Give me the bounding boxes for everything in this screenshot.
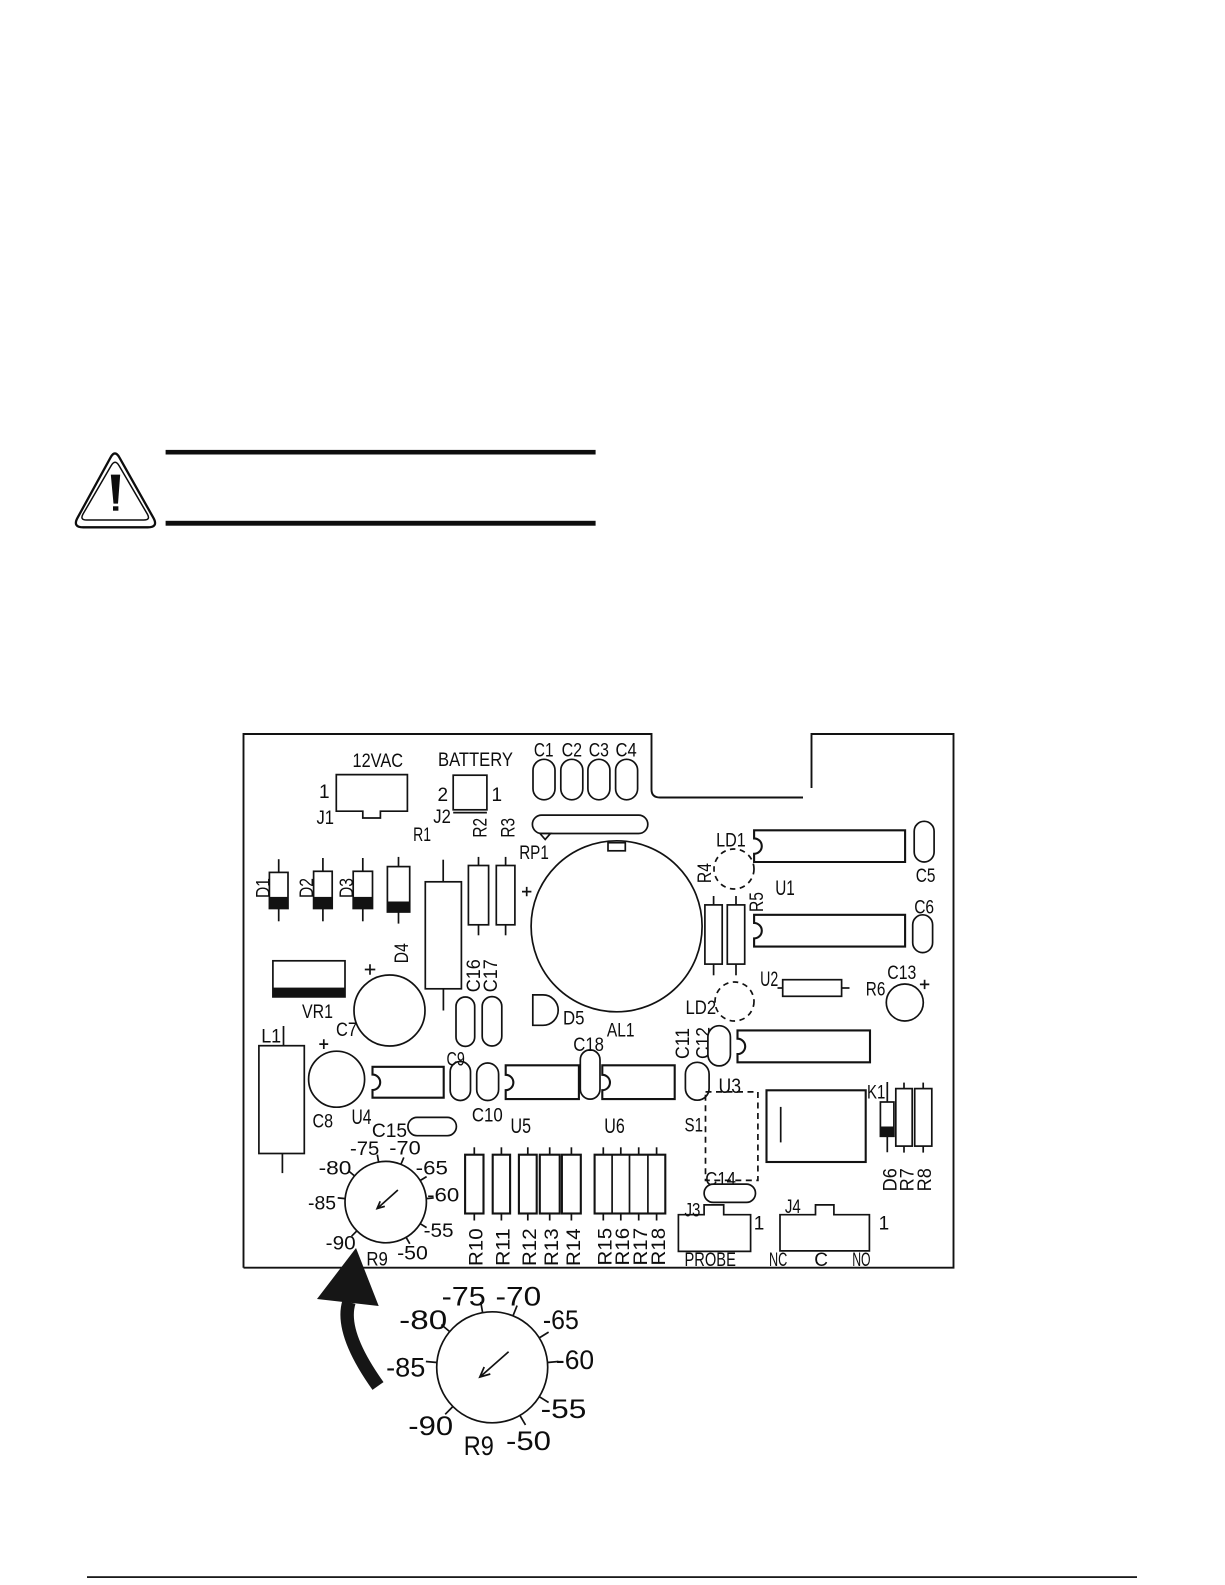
svg-text:RP1: RP1 [519,843,549,864]
svg-text:-50: -50 [397,1243,428,1264]
svg-text:-60: -60 [427,1185,459,1206]
svg-text:-80: -80 [319,1158,352,1179]
svg-text:K1: K1 [867,1082,885,1103]
svg-text:NO: NO [852,1250,870,1271]
svg-text:J4: J4 [785,1197,801,1218]
svg-text:-80: -80 [399,1305,447,1335]
svg-text:R13: R13 [542,1228,563,1266]
svg-text:C10: C10 [472,1106,503,1127]
svg-text:2: 2 [438,785,449,806]
svg-text:R11: R11 [494,1228,515,1266]
svg-text:D3: D3 [337,878,358,898]
svg-text:R9: R9 [464,1431,494,1461]
svg-text:-55: -55 [424,1221,454,1242]
svg-text:R1: R1 [413,825,431,846]
svg-text:BATTERY: BATTERY [438,750,513,771]
svg-text:J3: J3 [685,1201,701,1222]
svg-text:NC: NC [769,1250,787,1271]
svg-text:C7: C7 [336,1020,357,1041]
svg-text:-70: -70 [389,1138,420,1159]
svg-text:R5: R5 [747,892,768,912]
svg-text:1: 1 [492,785,503,806]
svg-text:-85: -85 [386,1353,425,1383]
svg-text:C4: C4 [616,740,638,761]
svg-text:-65: -65 [416,1158,448,1179]
svg-text:S1: S1 [685,1115,704,1136]
svg-text:-75: -75 [442,1281,486,1311]
svg-text:R9: R9 [366,1250,388,1271]
svg-text:J1: J1 [317,808,335,829]
svg-text:-55: -55 [541,1394,587,1424]
svg-text:R8: R8 [915,1168,936,1191]
svg-text:C5: C5 [916,866,936,887]
svg-text:U3: U3 [719,1075,742,1098]
svg-text:1: 1 [319,782,330,803]
svg-text:U1: U1 [775,877,795,900]
svg-text:-90: -90 [408,1411,453,1441]
svg-text:-65: -65 [543,1305,579,1335]
svg-text:R12: R12 [520,1228,541,1266]
svg-text:C1: C1 [534,740,554,761]
svg-text:C13: C13 [887,963,916,984]
svg-text:R2: R2 [471,818,492,838]
svg-text:1: 1 [879,1213,890,1234]
svg-text:U5: U5 [511,1115,532,1138]
svg-text:VR1: VR1 [302,1002,333,1023]
svg-text:U6: U6 [604,1115,625,1138]
svg-text:R14: R14 [564,1228,585,1266]
svg-text:J2: J2 [433,807,451,828]
svg-text:R10: R10 [467,1228,488,1266]
svg-text:C11: C11 [673,1028,694,1059]
svg-text:R18: R18 [649,1228,670,1266]
svg-text:R3: R3 [498,818,519,838]
svg-text:C9: C9 [447,1050,465,1071]
svg-text:12VAC: 12VAC [353,751,404,772]
svg-text:LD1: LD1 [716,831,746,852]
svg-text:U2: U2 [760,968,778,991]
svg-text:C2: C2 [562,740,583,761]
svg-text:LD2: LD2 [686,998,717,1019]
svg-text:R4: R4 [695,863,716,883]
svg-text:D4: D4 [392,943,413,963]
svg-text:D5: D5 [563,1008,585,1029]
svg-text:R6: R6 [866,980,886,1001]
svg-text:D1: D1 [253,878,274,898]
svg-text:-60: -60 [556,1345,594,1375]
svg-text:L1: L1 [261,1026,281,1047]
svg-text:U4: U4 [352,1106,372,1129]
svg-text:C8: C8 [313,1111,334,1132]
svg-text:-75: -75 [350,1139,379,1160]
svg-text:C: C [814,1250,828,1271]
svg-text:-70: -70 [496,1281,542,1311]
svg-text:-85: -85 [308,1193,336,1214]
svg-text:AL1: AL1 [607,1021,635,1042]
svg-text:C3: C3 [589,740,609,761]
svg-text:D2: D2 [297,878,318,898]
svg-text:1: 1 [754,1213,765,1234]
svg-text:C17: C17 [481,959,502,992]
svg-text:-90: -90 [326,1233,356,1254]
svg-text:-50: -50 [506,1426,551,1456]
svg-text:C18: C18 [573,1035,604,1056]
svg-text:PROBE: PROBE [685,1250,736,1271]
